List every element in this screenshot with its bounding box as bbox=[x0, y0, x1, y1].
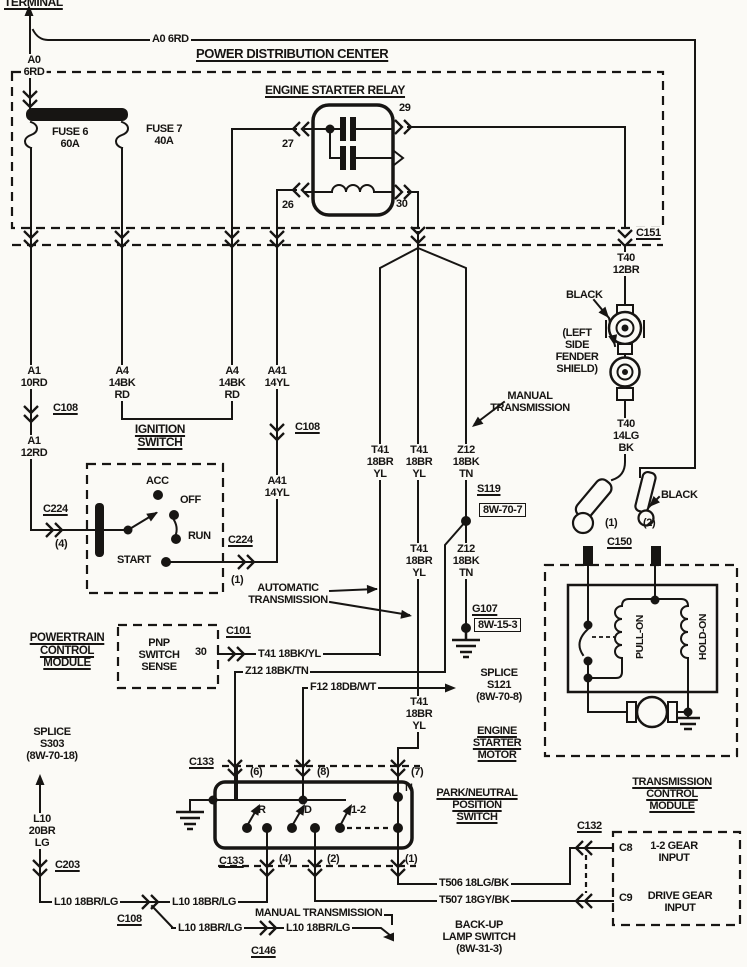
g107-ref-label: 8W-15-3 bbox=[474, 618, 521, 632]
pin7-label: (7) bbox=[411, 766, 423, 778]
fender-note-label: (LEFT SIDE FENDER SHIELD) bbox=[556, 327, 599, 375]
t41-link-label: T41 18BK/YL bbox=[256, 648, 323, 660]
manual-trans-lower-label: MANUAL TRANSMISSION bbox=[253, 907, 384, 919]
c151-label: C151 bbox=[634, 227, 663, 239]
ign-title-label: IGNITION SWITCH bbox=[135, 423, 185, 449]
black-upper-label: BLACK bbox=[566, 289, 603, 301]
pin6-label: (6) bbox=[250, 766, 262, 778]
wiring-diagram-page: TERMINALA0 6RDPOWER DISTRIBUTION CENTERA… bbox=[0, 0, 747, 967]
t41-v4-label: T41 18BR YL bbox=[404, 696, 435, 732]
pcm-title-label: POWERTRAIN CONTROL MODULE bbox=[30, 632, 105, 670]
a4-right-label: A4 14BK RD bbox=[217, 365, 248, 401]
c146-label: C146 bbox=[251, 945, 276, 957]
pnp-r-label: R bbox=[258, 804, 266, 816]
l10-seg3-label: L10 18BR/LG bbox=[176, 922, 244, 934]
c108-b-label: C108 bbox=[293, 421, 322, 433]
l10-seg4-label: L10 18BR/LG bbox=[284, 922, 352, 934]
pnp-12-label: 1-2 bbox=[351, 804, 366, 816]
c224-right-label: C224 bbox=[228, 534, 253, 546]
t41-v1-label: T41 18BR YL bbox=[365, 444, 396, 480]
c108-c-label: C108 bbox=[117, 913, 142, 925]
pnp-sense-label: PNP SWITCH SENSE bbox=[139, 637, 180, 673]
fuse6-label: FUSE 6 60A bbox=[52, 126, 88, 150]
pin2-label: (2) bbox=[327, 853, 339, 865]
t40-14lg-label: T40 14LG BK bbox=[611, 418, 641, 454]
ign-off-label: OFF bbox=[180, 494, 201, 506]
relay-pin29-label: 29 bbox=[399, 102, 410, 114]
s121-label: SPLICE S121 (8W-70-8) bbox=[476, 667, 522, 703]
c224-left-label: C224 bbox=[43, 503, 68, 515]
ign-run-label: RUN bbox=[188, 530, 211, 542]
c132-label: C132 bbox=[577, 820, 602, 832]
c224-left-pin-label: (4) bbox=[55, 538, 67, 550]
c133-top-label: C133 bbox=[189, 756, 214, 768]
backup-switch-label: BACK-UP LAMP SWITCH (8W-31-3) bbox=[442, 919, 515, 955]
a1-10rd-label: A1 10RD bbox=[19, 365, 50, 389]
relay-pin30-label: 30 bbox=[396, 198, 407, 210]
tcm-title-label: TRANSMISSION CONTROL MODULE bbox=[632, 776, 712, 812]
a41-lower-label: A41 14YL bbox=[263, 475, 292, 499]
z12-v2-label: Z12 18BK TN bbox=[451, 543, 482, 579]
pnp-d-label: D bbox=[304, 804, 312, 816]
pin4-label: (4) bbox=[279, 853, 291, 865]
t506-label: T506 18LG/BK bbox=[437, 877, 511, 889]
l10-vert-label: L10 20BR LG bbox=[27, 813, 58, 849]
pcm-pin30-label: 30 bbox=[195, 646, 206, 658]
c8-pin-label: C8 bbox=[619, 842, 632, 854]
s119-label: S119 bbox=[477, 483, 500, 495]
pnp-n-label: N bbox=[405, 782, 413, 794]
g107-label: G107 bbox=[472, 603, 497, 615]
l10-seg1-label: L10 18BR/LG bbox=[52, 896, 120, 908]
fuse7-label: FUSE 7 40A bbox=[146, 123, 182, 147]
t40-12br-label: T40 12BR bbox=[611, 252, 642, 276]
c108-a-label: C108 bbox=[51, 402, 80, 414]
esm-title-label: ENGINE STARTER MOTOR bbox=[473, 725, 521, 761]
c133-bottom-label: C133 bbox=[219, 855, 244, 867]
manual-trans-upper-label: MANUAL TRANSMISSION bbox=[490, 390, 570, 414]
c203-label: C203 bbox=[55, 859, 80, 871]
diagram-labels-layer: TERMINALA0 6RDPOWER DISTRIBUTION CENTERA… bbox=[0, 0, 747, 967]
relay-pin27-label: 27 bbox=[282, 138, 293, 150]
relay-pin26-label: 26 bbox=[282, 199, 293, 211]
f12-link-label: F12 18DB/WT bbox=[308, 681, 378, 693]
c224-right-pin-label: (1) bbox=[231, 574, 243, 586]
ign-start-label: START bbox=[117, 554, 151, 566]
s303-label: SPLICE S303 (8W-70-18) bbox=[26, 726, 77, 762]
a0-wire-top-label: A0 6RD bbox=[150, 33, 191, 45]
t41-v2-label: T41 18BR YL bbox=[404, 444, 435, 480]
pdc-title-label: POWER DISTRIBUTION CENTER bbox=[196, 47, 388, 61]
esr-title-label: ENGINE STARTER RELAY bbox=[265, 84, 405, 97]
black-lower-label: BLACK bbox=[661, 489, 698, 501]
c101-label: C101 bbox=[226, 625, 251, 637]
c9-desc-label: DRIVE GEAR INPUT bbox=[648, 890, 712, 914]
auto-trans-label: AUTOMATIC TRANSMISSION bbox=[248, 582, 328, 606]
pnp-title-label: PARK/NEUTRAL POSITION SWITCH bbox=[436, 787, 517, 823]
c8-desc-label: 1-2 GEAR INPUT bbox=[650, 840, 698, 864]
a0-wire-vert-label: A0 6RD bbox=[22, 54, 47, 78]
a4-left-label: A4 14BK RD bbox=[107, 365, 138, 401]
terminal-title-label: TERMINAL bbox=[4, 0, 63, 9]
a1-12rd-label: A1 12RD bbox=[19, 435, 50, 459]
a41-upper-label: A41 14YL bbox=[263, 365, 292, 389]
z12-v1-label: Z12 18BK TN bbox=[451, 444, 482, 480]
t507-label: T507 18GY/BK bbox=[437, 894, 511, 906]
pull-on-label: PULL-ON bbox=[635, 615, 647, 659]
l10-seg2-label: L10 18BR/LG bbox=[170, 896, 238, 908]
ign-acc-label: ACC bbox=[146, 475, 169, 487]
z12-link-label: Z12 18BK/TN bbox=[243, 665, 310, 677]
c9-pin-label: C9 bbox=[619, 892, 632, 904]
t41-v3-label: T41 18BR YL bbox=[404, 543, 435, 579]
term1-num-label: (1) bbox=[605, 517, 617, 529]
c150-label: C150 bbox=[607, 536, 632, 548]
pin1-label: (1) bbox=[405, 853, 417, 865]
hold-on-label: HOLD-ON bbox=[698, 614, 710, 660]
pin8-label: (8) bbox=[317, 766, 329, 778]
s119-ref-label: 8W-70-7 bbox=[479, 503, 526, 517]
term2-num-label: (2) bbox=[643, 517, 655, 529]
